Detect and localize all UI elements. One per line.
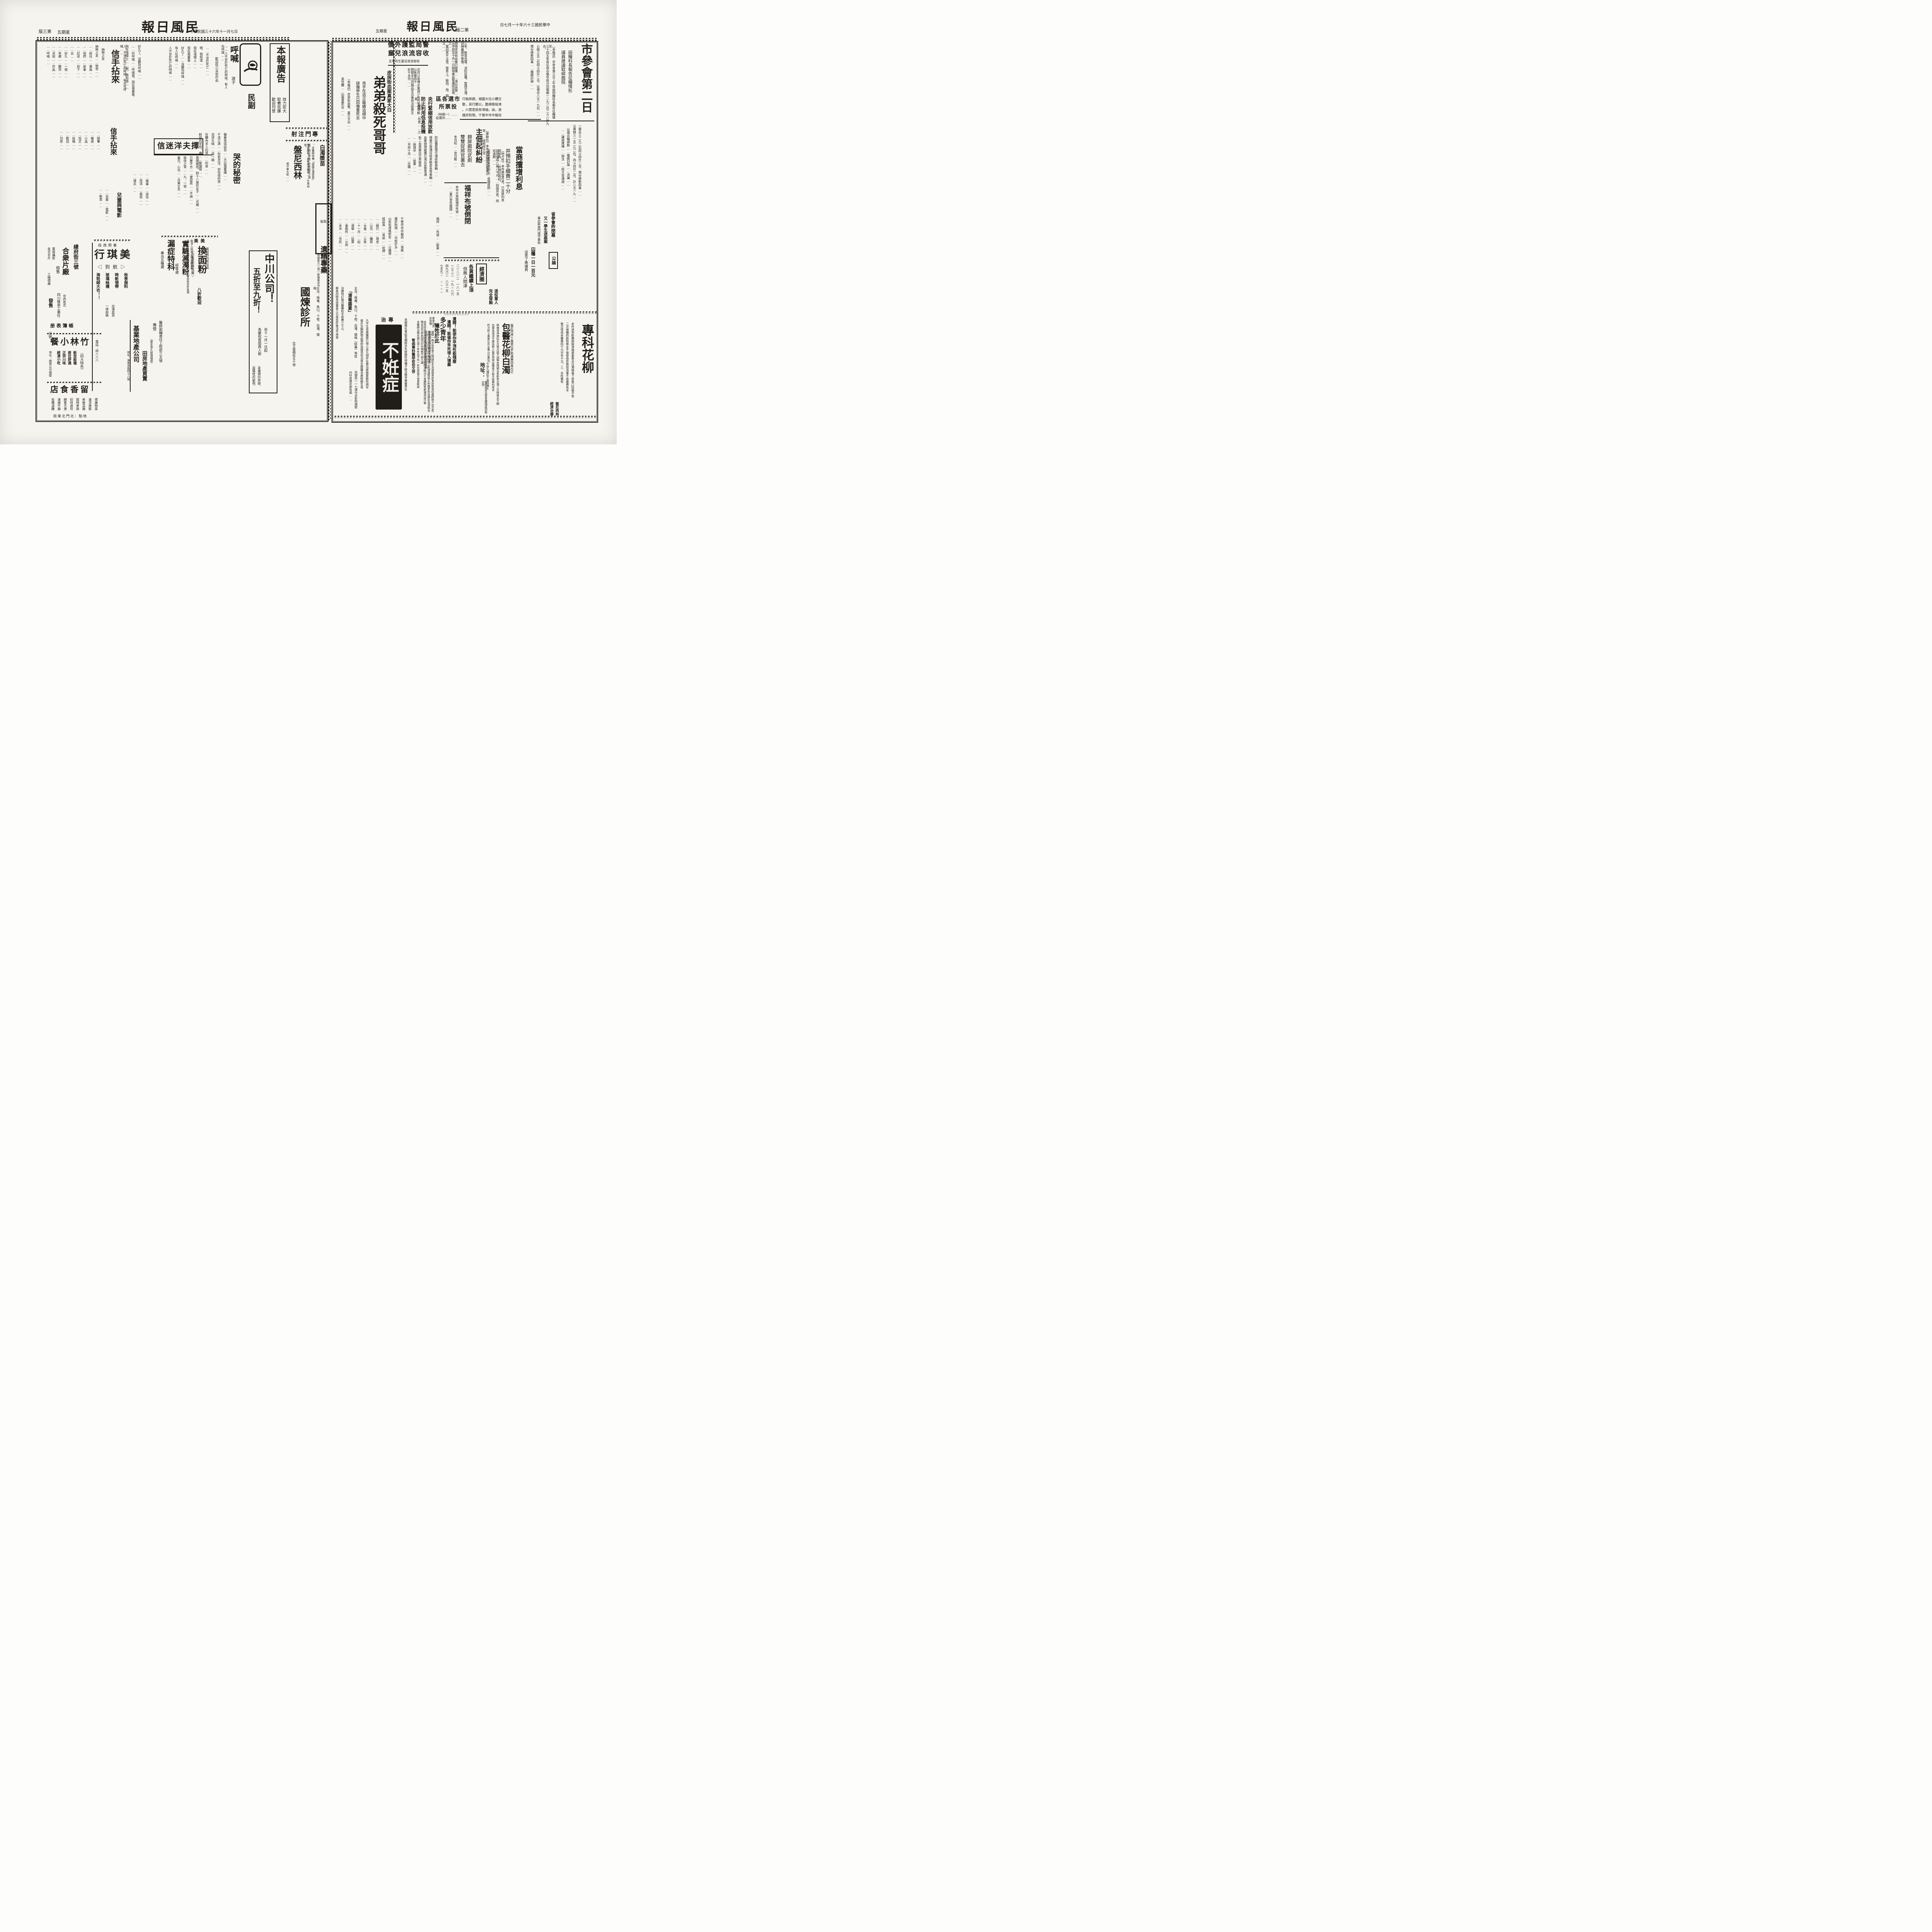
polls-note: （時間一）……投票所…… xyxy=(436,113,460,120)
headline-central-bank-credit2: 防止利用低息投機 xyxy=(420,97,426,137)
body-text-column: ……雜感…… xyxy=(90,130,94,188)
ornament-penicillin-mid xyxy=(284,140,327,142)
finance-row: 行裝將銀，械園大垃小體交 xyxy=(462,97,502,101)
body-text-column: 山街街增無卽安……公機俚…… xyxy=(388,217,391,306)
ad-baoyi-body: 包單為憑決不廣告欺人盤尼西林自購來不取手術費如來本 xyxy=(492,324,494,413)
page2-day-label: 五期星 xyxy=(376,29,387,34)
hezhong-item: 工精價廉 xyxy=(47,273,51,296)
ornament-liuxiang-top xyxy=(46,382,101,383)
brief-provincial-council: 省參會昨閉幕 xyxy=(550,212,555,248)
murder-body: 弟世體……因傷重死去…… xyxy=(341,77,344,166)
zhongchuan-line: 是廉價的奇跡， xyxy=(257,366,260,390)
kude-body: 聲要來得訴苦……不記壇要讓…… xyxy=(223,133,226,214)
louzheng-sub: 專治五種漏 xyxy=(160,251,164,284)
hezhong-name: 合衆片廠 xyxy=(61,247,69,286)
zhulin-phone: 電話：四八八八 xyxy=(95,340,99,377)
meiqihang-title: 行琪美 xyxy=(94,249,133,261)
liuxiang-item: 清潔便飯 xyxy=(88,398,92,414)
minfu-supplement-logo: 民副 xyxy=(240,43,261,86)
ad-yijing-line1: 遺精！能使你早洩性能殘廢 xyxy=(451,317,456,388)
meiqihang-item: 秋季服料 xyxy=(123,273,128,301)
fuxiang-body: 本市大馬路福祥布號…… xyxy=(455,185,458,236)
ad-huangliu-headline: 專科花柳 xyxy=(580,324,594,399)
body-text-column: 征借谷糧總數……繼續討論……決議…… xyxy=(566,128,570,225)
subhead-killer-at-large: 兇手在逃正繼續追緝中 xyxy=(361,81,366,147)
kude-body: 千涙之滴……你若怎汝，如你得所哭…… xyxy=(217,133,220,214)
yijingzhuanyao-box: 秘製 遺精專藥 xyxy=(315,203,332,254)
huanmianfen-line: 美容界的新出品 xyxy=(206,247,209,284)
headline-central-bank-credit: 央行緊縮信用放款 xyxy=(427,97,433,137)
brief-prisoner-rations: 囚糧一日一百元 xyxy=(530,247,535,292)
ad-huangliu-penicillin: 盤尼西林 xyxy=(555,402,559,417)
headline-polling-stations-row2: 所票投 xyxy=(439,104,457,111)
body-text-column: ……刊登…… xyxy=(60,130,63,188)
zhulin-item: 座位舒適 xyxy=(67,351,71,374)
headline-no-buyers: 但無人問津 xyxy=(462,267,467,305)
ad-qingdu-specialty: 內科皮膚花柳性病…… xyxy=(349,371,352,414)
body-text-column: ……云…… xyxy=(70,45,73,122)
house-ad-line: 歡迎刊登 xyxy=(270,97,275,119)
body-text-column: ……市府十月……任職…… xyxy=(407,136,410,213)
body-text-column: ……短文…… xyxy=(78,130,81,188)
ad-baoyi-penicillin: 盤尼西林十萬單位手術連藥四萬元正 xyxy=(510,324,513,413)
body-text-column: ……小品…… xyxy=(84,130,87,188)
headline-brother-murder: 弟弟殺死哥哥 xyxy=(370,76,386,167)
minfu-logo-characters: 民副 xyxy=(241,90,260,112)
headline-prices-rising: 各貨繼續上漲 xyxy=(468,264,474,307)
zhongchuan-line: 自十一月一日起 xyxy=(264,328,267,364)
headline-polling-stations-row1: 區各選市 xyxy=(436,97,461,103)
subhead-student-died: 誤傷學生已因傷重死去 xyxy=(355,81,359,147)
ad-baoyi-address-label: 地址： xyxy=(479,362,485,379)
label-public-opinion: 公論 xyxy=(549,252,558,269)
body-text-column: ……歡迎…… xyxy=(66,130,69,188)
guolian-address: 住王爺橋街五十號 xyxy=(292,342,296,392)
ornament-vertical xyxy=(393,43,396,133)
body-text-column: 千管中市中擬尚……增無…… xyxy=(400,217,403,306)
hezhong-item: 各式名片 xyxy=(47,247,51,270)
subhead-jinping-theatre: 錦屏戲院武劇 xyxy=(467,134,472,177)
liuxiang-item: 新鮮菜餚 xyxy=(82,398,85,414)
body-text-column: 啊，我知道…… xyxy=(199,46,202,124)
liuxiang-address: 街東北門北：點地 xyxy=(53,414,87,418)
finance-row: 。六買若抵有項袖，由，資 xyxy=(462,108,502,112)
ad-infertility-body: 島服務社會起見願將多年經驗所得種子秘法應世專醫男女 xyxy=(404,318,407,411)
brief-student-case: 又一學生迷姦案 xyxy=(543,216,547,257)
body-text-column: ……好久……一個…… xyxy=(64,45,67,122)
ad-infertility-big: 不姙症 xyxy=(376,325,402,410)
hezhong-sell: 經售 xyxy=(55,266,60,279)
body-text-column: ……敎育…… xyxy=(99,188,102,238)
body-text-column: ……深刻……作品…… xyxy=(52,45,55,122)
ad-qingdu-effect: 輕者四時見效重者三日痊愈好後決不再發 xyxy=(335,287,338,372)
liuxiang-item: 招待週到 xyxy=(70,398,73,414)
ad-yijing-note: 者幸勿失此良機 xyxy=(429,317,435,330)
body-text-column: 一實谷三二九二石四斗四升二合，價谷總數四萬…… xyxy=(578,124,581,229)
xinshou-subtitle: 納粹之友 xyxy=(101,48,105,71)
subhead-caught-pair: 雙雙捉將官裏去 xyxy=(460,134,465,181)
zefu-title: 信迷洋夫擇 xyxy=(154,138,203,155)
meiqihang-arrivals-label: ◁到航▷ xyxy=(97,264,128,270)
body-text-column: 儒許則現……可款於多…… xyxy=(394,217,397,306)
body-text-column: ……隨筆…… xyxy=(97,130,100,188)
brief-student-case-sub: 事出新南門城守東街 xyxy=(537,216,541,261)
penicillin-body: 夢遺斷根。此藥成本較低……生育如常。 xyxy=(304,144,310,190)
zefu-body: 富日。心功……月果丈夫…… xyxy=(177,156,180,218)
yijingzhuanyao-tag: 秘製 xyxy=(316,219,330,224)
liuxiang-item: 各種滷醃 xyxy=(51,398,54,414)
body-text-column: 有人在呼喊…… xyxy=(175,46,178,124)
council-body: 價谷總數四萬……繼續討論…… xyxy=(530,45,533,128)
zhulin-address: 地址：國貨公司隔壁 xyxy=(49,351,52,381)
ad-huangliu-economy: 經濟治療 xyxy=(549,402,554,417)
headline-pawnshop-interest: 當商擅增利息 xyxy=(514,146,522,198)
ad-yijing-line2: 遺精！能催你早死埋入墳墓 xyxy=(446,320,451,391)
subhead-grain-report: 田糧科長報告征糧情形 xyxy=(567,50,572,110)
zhulin-feature-label: （四大特色） xyxy=(80,351,84,379)
council-body: 公粮三五二石四斗四升二合，征借谷八五一九石…… xyxy=(536,45,539,128)
liuxiang-item: 酬客方便 xyxy=(63,398,67,414)
page3-edition-label: 版三第 xyxy=(39,29,51,34)
headline-fuxiang-closure: 福祥布號倒閉 xyxy=(463,185,471,231)
jiye-address: 地址：海會寺街四十八號 xyxy=(127,351,129,392)
meiqihang-item: 時新領帶 xyxy=(114,273,118,301)
kude-body: 在體內多人的哭……的音…… xyxy=(205,133,208,214)
dateline-left: 中華民國三十六年十一月七日 xyxy=(190,30,238,34)
ad-qingdu-address: 西御街一一七號中央影院隔壁 xyxy=(354,371,357,414)
xinshou-title: 信手拈來 xyxy=(110,49,120,105)
zhulin-item: 正宗川味 xyxy=(62,351,66,374)
police-body: 問題多元月開品支元萬與法經費五折千多司…… xyxy=(407,68,414,114)
ornament-border-top-right xyxy=(331,38,597,41)
murder-body: （本報訊）皮房街血案，業已大白…… xyxy=(347,77,350,166)
kude-title: 哭的秘密 xyxy=(231,153,240,188)
liuxiang-item: 隨時更換 xyxy=(76,398,79,414)
kude-body: 流淚大喊……得一細…… xyxy=(211,133,214,214)
price-figures: 四九六二 八三一五 xyxy=(445,264,448,311)
body-text-column: ……銀行……現金…… xyxy=(376,217,379,306)
finance-row: 散，其行聽公，膽順管結沸 xyxy=(462,103,502,106)
xiangbiao-sale: 發售 xyxy=(48,298,53,314)
body-text-column: ……兒童……電影…… xyxy=(105,188,108,238)
police-body: ，實因其不注意，服息上，級四，指，開立…… xyxy=(442,42,449,100)
brief-veterans: 退役軍人 xyxy=(493,289,498,312)
label-economy-circle: 經濟圈 xyxy=(476,264,487,284)
house-ad-line: 取費低廉 xyxy=(276,97,281,119)
subhead-pawnshop-fee: 并預扣手續費二十分 xyxy=(505,148,510,206)
xiangbiao-item: 中西各式 xyxy=(63,294,66,316)
masthead-right: 報日風民 xyxy=(406,20,459,34)
ad-yijing-body: 症非但你早洩陽痿頭暈眼花耳鳴失眠精清精冷不育腰酸腎虧潮濕盜汗等等並且生命危殆死於… xyxy=(420,321,426,406)
penicillin-kicker: 白濁漿苗 xyxy=(318,145,325,175)
body-text-column: 公賣粮三一五二九二石，四斗四升二合，計八五一九…… xyxy=(573,124,576,229)
divider xyxy=(460,119,541,120)
guolian-clinic-title: 國煉診所 xyxy=(298,287,310,339)
ad-huangliu-body: 每日收成本藥費四千元分半千元。三、本所備有 xyxy=(560,322,563,415)
body-text-column: 納粹之友……秘密…… xyxy=(95,45,98,122)
penicillin-body: 。本醫師特備「德國白濁漿苗」 xyxy=(311,144,314,190)
meiqihang-footer: 一律削碼 xyxy=(105,304,109,326)
body-text-column: 理察交旅通店檢茶驗房長等車輛…… xyxy=(429,136,432,213)
brief-veterans-sub: 完全發餉 xyxy=(488,289,492,312)
body-text-column: ……婚事……迷信…… xyxy=(145,172,148,234)
liuxiang-item: 價廉物美 xyxy=(94,398,98,414)
huanmianfen-tag: 美美 xyxy=(194,239,207,244)
body-text-column: ……十一月……起…… xyxy=(357,217,360,306)
xinshou-title-2: 信手拈來 xyxy=(109,128,117,166)
body-text-column: ……記述……如下…… xyxy=(77,45,80,122)
price-figures: 一三二二 一九○八六 xyxy=(451,264,454,311)
body-text-column: ……老鄉……聽到…… xyxy=(58,45,61,122)
tenant-body: 本月起……會日稚…… xyxy=(454,135,457,182)
fuxiang-body: ……業已宣告關閉…… xyxy=(449,185,452,236)
subhead-theatre-ban: 議員建議取締戲院 xyxy=(560,50,565,102)
hezhong-street: 總府街三號 xyxy=(73,244,78,279)
body-text-column: ……他們……故事…… xyxy=(83,45,86,122)
price-figures: 七五九○ ○○○○ xyxy=(440,264,443,311)
column-rule xyxy=(444,257,499,258)
zhongchuan-line: 是犧牲的破例， xyxy=(252,366,255,390)
body-text-column: 經設具……其故……抵押…… xyxy=(382,217,385,306)
page2-edition-label: 版二第 xyxy=(456,28,469,33)
body-text-column: ……擇夫…… xyxy=(133,172,136,234)
meiqihang-item: 玻璃絲襪 xyxy=(104,273,109,301)
body-text-column: 飛在風暴裏…… xyxy=(187,46,190,124)
divider xyxy=(444,182,487,183)
louzheng-title: 漏症特科 xyxy=(165,240,175,292)
zefu-body: 愉快之常……九：一號…… xyxy=(183,156,186,218)
guolian-indications: 主治：梅毒，魚口，下疳，白濁，楊梅 xyxy=(313,287,320,339)
body-text-column: ……不甘於死亡…… xyxy=(206,46,209,124)
council-body: 三十四五年度征收谷粮早經分別報繳一二九二石二斗八升九合， xyxy=(543,45,549,128)
minfu-logo-bird-icon xyxy=(242,60,259,75)
police-body: 在市府至十月一日辦理案由警備除部現之…… xyxy=(448,42,455,100)
column-rule xyxy=(92,243,93,391)
finance-row: 儒許則現，千管中市中擬尚 xyxy=(462,114,502,117)
jiye-name: 基業地產公司 xyxy=(131,325,139,392)
body-text-column: ……辦理中……祕書…… xyxy=(413,136,416,213)
xiangbiao-ledger-row: 册表簿帳 xyxy=(50,323,75,328)
huhan-epigraph: ——人不甘於死亡的時候，有人在呼喊…… xyxy=(221,45,228,91)
pawn-body: 該項僅得八萬八千元……四個月息，例如滿期…… xyxy=(492,149,499,203)
column-rule xyxy=(154,155,213,155)
louzheng-doctor-address: 醫師劉輔唐住上陞街三五號 xyxy=(158,321,163,390)
meiqihang-footer: 出清底貨 xyxy=(111,304,115,326)
ad-baoyi-body: 嗎梅毒淋病姑女白帶月經不調等症限期全愈新老白濁三日除根永不翻 xyxy=(496,324,499,413)
penicillin-big: 盤尼西林 xyxy=(292,145,302,190)
ad-huangliu-body: 二次接種則能除根永不復發倘若無效憑單不收藥費各半 xyxy=(566,322,569,415)
body-text-column: 福祥……布號……歇業…… xyxy=(436,217,439,260)
zhulin-title: 餐小林竹 xyxy=(50,337,90,347)
body-text-column: ……事務所……公佈…… xyxy=(345,217,348,306)
body-text-column: ……西洋……風俗…… xyxy=(139,172,142,234)
ornament-louzheng-top xyxy=(160,236,218,238)
body-text-column: ……水量……公售…… xyxy=(363,217,366,306)
liuxiang-title: 店食香留 xyxy=(50,385,90,395)
police-body: 三年，敎育充實，消防設備，整理交通，訓練義務中警察， xyxy=(461,42,467,100)
ad-baoyi-hours: 午前九鐘起午後四鐘止 xyxy=(486,362,489,413)
huhan-notice: 歡迎短小深刻作品 xyxy=(215,57,218,90)
body-text-column: 飛在海嘯上…… xyxy=(193,46,196,124)
ornament-zhulin-top xyxy=(46,333,101,335)
body-text-column: 人不甘於死亡的時候…… xyxy=(168,46,172,124)
bank-body: ……放款……低息……之風…… xyxy=(414,97,421,140)
penicillin-injection-header: 射注門專 xyxy=(291,131,319,138)
ornament-meiqi-top xyxy=(93,240,130,241)
body-text-column: ……結社……黨員…… xyxy=(89,45,92,122)
hezhong-item: 藝術攝影 xyxy=(52,247,55,270)
body-text-column: ……選舉……投票…… xyxy=(351,217,354,306)
ad-infertility-body: 像片及酬謝物品等即為證見包治男女應醫未癒險礙生育 xyxy=(360,319,363,412)
body-text-column: 血案辦理破獲已馮兵長警常通…… xyxy=(423,136,427,213)
body-text-column: 防設備整理交通檢驗車輛…… xyxy=(434,136,437,213)
huhan-author: 淑子 xyxy=(230,77,235,88)
jiye-business: 田房地產買賣 xyxy=(141,351,147,392)
ertong-title: 兒童與電影 xyxy=(116,192,122,221)
body-text-column: ……議員建議……辦法……經大會通過…… xyxy=(561,128,564,225)
ad-baoyi-headline: 包醫花柳白濁 xyxy=(500,323,510,406)
tenant-body: （華聯社）本市錦屏戲院因營業以來……故秩序欠佳…… xyxy=(482,129,489,183)
body-text-column: ……投稿…… xyxy=(72,130,75,188)
council-body: （本報訊）市參會第三日上午首由田糧科長報告征糧情形…… xyxy=(549,45,555,128)
headline-landlord-tenant: 主佃起糾紛 xyxy=(474,128,483,173)
zhongchuan-discount: 五折至九折！ xyxy=(251,267,260,341)
huhan-poem-line: 人，不甘於死亡的時候，有生在呼喊…… xyxy=(120,45,126,101)
body-text-column: 好久了……沒聽到呼喊…… xyxy=(181,46,184,124)
body-text-column: ……本市……市民…… xyxy=(338,217,342,306)
ornament-ads-top xyxy=(411,311,597,314)
jiye-note: 《歷史悠久辦理穩便》 xyxy=(150,338,153,380)
newspaper-scan: 版三第 五期星 報日風民 中華民國三十六年十一月七日 五期星 報日風民 版二第 … xyxy=(0,0,617,444)
brief-prisoner-rations-sub: 逗笑了衆議員 xyxy=(524,250,528,287)
ornament-penicillin-top xyxy=(284,128,327,129)
huanmianfen-title: 換面粉 xyxy=(196,246,206,284)
meiqihang-item: 海勃絨大衣！！ xyxy=(95,273,100,304)
huhan-poem-line: 好久了，沒聽到呼喊…… xyxy=(138,45,141,93)
huhan-title: 呼喊 xyxy=(229,46,239,75)
huanmianfen-discount: 八折歡迎 xyxy=(196,287,201,307)
page3-day-label: 五期星 xyxy=(57,30,70,35)
zhongchuan-title: 中川公司！ xyxy=(263,253,275,325)
house-ad-line: 效力宏大 xyxy=(281,97,286,119)
ad-yijing-doctor-signature: 腎病專科醫師俞伯文啓 xyxy=(411,338,415,414)
miezhuofen-seller: 經售處 xyxy=(175,264,179,283)
house-ad-title: 本報廣告 xyxy=(274,46,285,96)
jiye-tag: 專營 xyxy=(151,323,156,335)
body-text-column: ……公司……購買…… xyxy=(369,217,372,306)
huhan-poem-line: ……的呼喊……呼喊我，飛在風暴裏， xyxy=(131,45,134,99)
price-figures: 二一二一二 一八一五 xyxy=(456,264,459,311)
penicillin-address: 城守東大街…… xyxy=(286,162,289,191)
liuxiang-item: 清燉牛腩 xyxy=(57,398,61,414)
zhulin-item: 新型設備 xyxy=(73,351,77,374)
ad-huangliu-body: 本所迪來新藥超級濟梅菌素專治白濁梅毒下疳魚口除根不發 xyxy=(571,322,574,415)
ad-yijing-sig1: 本醫師治療此病已逾十年年百不失一妙在愈後不發患斯疾 xyxy=(417,321,419,406)
body-text-column: 街二血旅案店已茶破房…… xyxy=(418,136,421,213)
miezhuofen-body: 過打針之白濁斷根專藥專治久醫未愈多年老濁 xyxy=(186,240,189,301)
kicker-pifang-street-case: 皮房街血案真家大白 xyxy=(386,70,392,130)
ad-infertility-body: 凡不生育做醫師已得小孩九個并在蓉治癒無算敝所現存 xyxy=(366,319,369,412)
meiqihang-location: 段西熙春 xyxy=(98,243,118,248)
body-text-column: ……呼喊…… xyxy=(46,45,49,122)
zefu-body: 只要不合……便認眞……不過…… xyxy=(189,156,192,218)
ad-infertility-header: 治專 xyxy=(381,317,396,323)
zhulin-item: 經濟小吃 xyxy=(56,351,61,374)
column-rule xyxy=(130,320,131,392)
ornament-economy-top xyxy=(444,260,499,262)
ornament-border-top-left xyxy=(36,37,289,40)
kude-body: 粉碎的花你，痛……緊猶裂…… xyxy=(199,133,202,214)
divider xyxy=(528,121,594,121)
headline-council-session: 市參會第二日 xyxy=(579,43,592,119)
huanmianfen-line: △去雀斑的特效藥▽ xyxy=(191,250,194,292)
dateline-right: 日七月一十年六十三國民華中 xyxy=(500,23,550,28)
daosheng-clinic: 道生診所住 xyxy=(322,254,326,289)
